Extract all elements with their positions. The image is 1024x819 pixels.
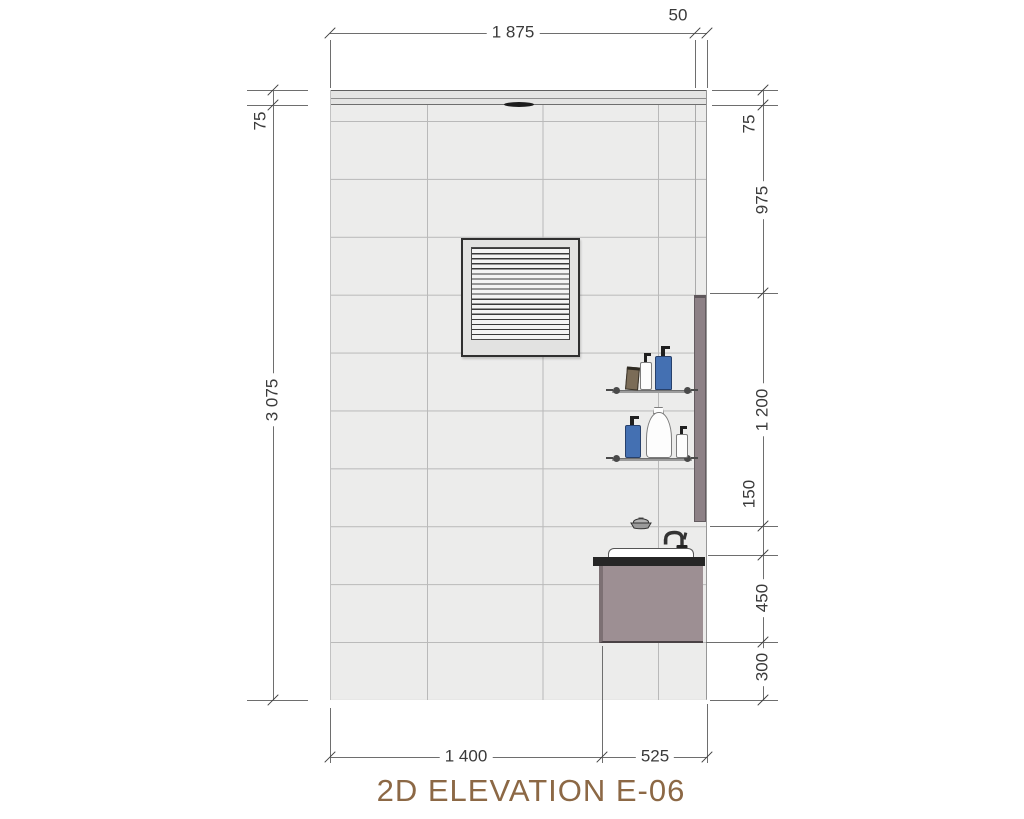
dim-extension (695, 40, 696, 88)
dim-label-edge: 50 (664, 7, 693, 26)
shelf-bracket-stem (691, 389, 698, 391)
shelf-bracket-icon (613, 455, 620, 462)
lotion-bottle-blue (625, 425, 641, 458)
dim-extension (707, 40, 708, 88)
pump-bottle-blue (655, 356, 672, 390)
wall-edge-strip (695, 105, 696, 295)
drawing-title: 2D ELEVATION E-06 (377, 773, 686, 809)
dim-extension (708, 555, 778, 556)
dim-label-base: 300 (754, 648, 773, 686)
vent-grille (461, 238, 580, 357)
ceiling-light-icon (504, 102, 534, 107)
dim-label-upper-zone: 975 (754, 181, 773, 219)
dim-label-gap: 150 (741, 475, 760, 513)
ceiling-band-joint (331, 98, 706, 99)
dim-extension (710, 526, 778, 527)
dim-extension (712, 90, 778, 91)
vanity-cabinet (599, 566, 703, 643)
dim-extension (247, 90, 308, 91)
dim-label-vanity-segment: 525 (636, 748, 674, 767)
glass-shelf-lower (612, 458, 692, 461)
dim-label-wall-segment: 1 400 (440, 748, 493, 767)
soap-dish-icon (628, 516, 654, 530)
dim-extension (710, 700, 778, 701)
dim-extension (602, 646, 603, 763)
dim-extension (710, 293, 778, 294)
elevation-drawing: 1 875 50 75 3 075 75 975 1 200 150 450 3… (0, 0, 1024, 819)
pump-bottle-small-white (676, 434, 688, 458)
ceiling-band (331, 90, 706, 105)
shelf-bracket-icon (684, 387, 691, 394)
dim-extension (247, 700, 308, 701)
dim-extension (706, 642, 778, 643)
glass-shelf-upper (612, 390, 692, 393)
shelf-bracket-stem (606, 389, 613, 391)
shelf-bracket-stem (606, 457, 613, 459)
tube-bottle (625, 366, 640, 390)
dim-label-band-right: 75 (741, 110, 760, 139)
mirror-panel (694, 295, 706, 522)
dim-extension (712, 105, 778, 106)
dim-label-band-left: 75 (252, 107, 271, 136)
dim-extension (330, 40, 331, 88)
countertop (593, 557, 705, 566)
dim-label-shelf-zone: 1 200 (754, 384, 773, 437)
shelf-bracket-icon (613, 387, 620, 394)
dim-label-wall-width: 1 875 (487, 24, 540, 43)
curvy-bottle-white (646, 412, 672, 458)
pump-bottle-white (640, 362, 652, 390)
dim-label-vanity-height: 450 (754, 579, 773, 617)
shelf-bracket-stem (691, 457, 698, 459)
vent-louvers (471, 247, 570, 340)
dim-label-wall-height: 3 075 (264, 374, 283, 427)
